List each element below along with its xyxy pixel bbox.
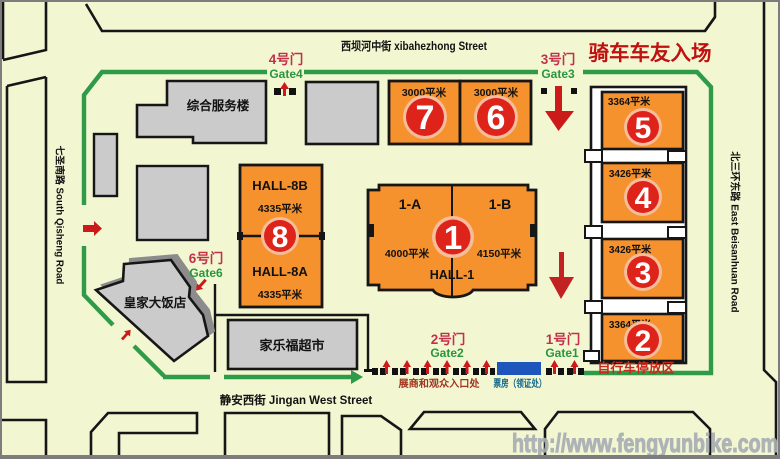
svg-text:Gate4: Gate4: [269, 67, 303, 81]
svg-text:1-A: 1-A: [399, 196, 422, 212]
svg-text:4号门: 4号门: [269, 51, 304, 67]
svg-text:7: 7: [416, 99, 435, 137]
svg-text:3364平米: 3364平米: [608, 95, 651, 108]
svg-text:北三环东路 East Beisanhuan Road: 北三环东路 East Beisanhuan Road: [729, 151, 742, 312]
svg-text:1-B: 1-B: [489, 196, 512, 212]
svg-text:5: 5: [635, 112, 652, 145]
svg-text:票房（领证处）: 票房（领证处）: [494, 377, 547, 390]
svg-text:HALL-8A: HALL-8A: [252, 264, 308, 279]
svg-text:Gate3: Gate3: [541, 67, 575, 81]
svg-text:4335平米: 4335平米: [258, 202, 303, 215]
svg-text:静安西街 Jingan West Street: 静安西街 Jingan West Street: [220, 393, 373, 407]
svg-text:综合服务楼: 综合服务楼: [187, 98, 250, 113]
svg-text:Gate6: Gate6: [189, 266, 223, 280]
svg-text:七圣南路 South Qisheng Road: 七圣南路 South Qisheng Road: [54, 146, 67, 285]
svg-text:8: 8: [272, 221, 289, 254]
svg-text:6号门: 6号门: [189, 250, 224, 266]
svg-text:骑车车友入场: 骑车车友入场: [589, 41, 712, 65]
svg-text:自行车停放区: 自行车停放区: [598, 361, 675, 376]
svg-text:3426平米: 3426平米: [609, 167, 652, 180]
svg-text:3: 3: [635, 257, 652, 290]
svg-text:2号门: 2号门: [431, 331, 466, 347]
svg-text:家乐福超市: 家乐福超市: [259, 338, 324, 353]
svg-text:3号门: 3号门: [541, 51, 576, 67]
svg-text:4000平米: 4000平米: [385, 247, 430, 260]
svg-text:4335平米: 4335平米: [258, 288, 303, 301]
svg-text:HALL-8B: HALL-8B: [252, 178, 308, 193]
svg-text:1号门: 1号门: [546, 331, 581, 347]
svg-text:4150平米: 4150平米: [477, 247, 522, 260]
svg-text:展商和观众入口处: 展商和观众入口处: [399, 377, 481, 390]
svg-text:http://www.fengyunbike.com: http://www.fengyunbike.com: [512, 428, 778, 458]
svg-text:4: 4: [635, 182, 652, 215]
svg-text:6: 6: [487, 99, 506, 137]
svg-text:皇家大饭店: 皇家大饭店: [124, 295, 187, 310]
svg-text:2: 2: [635, 325, 652, 358]
svg-text:HALL-1: HALL-1: [430, 268, 474, 282]
svg-text:Gate2: Gate2: [430, 346, 464, 360]
svg-text:1: 1: [444, 219, 462, 256]
svg-text:Gate1: Gate1: [545, 346, 579, 360]
svg-text:西坝河中街 xibahezhong Street: 西坝河中街 xibahezhong Street: [341, 39, 487, 53]
